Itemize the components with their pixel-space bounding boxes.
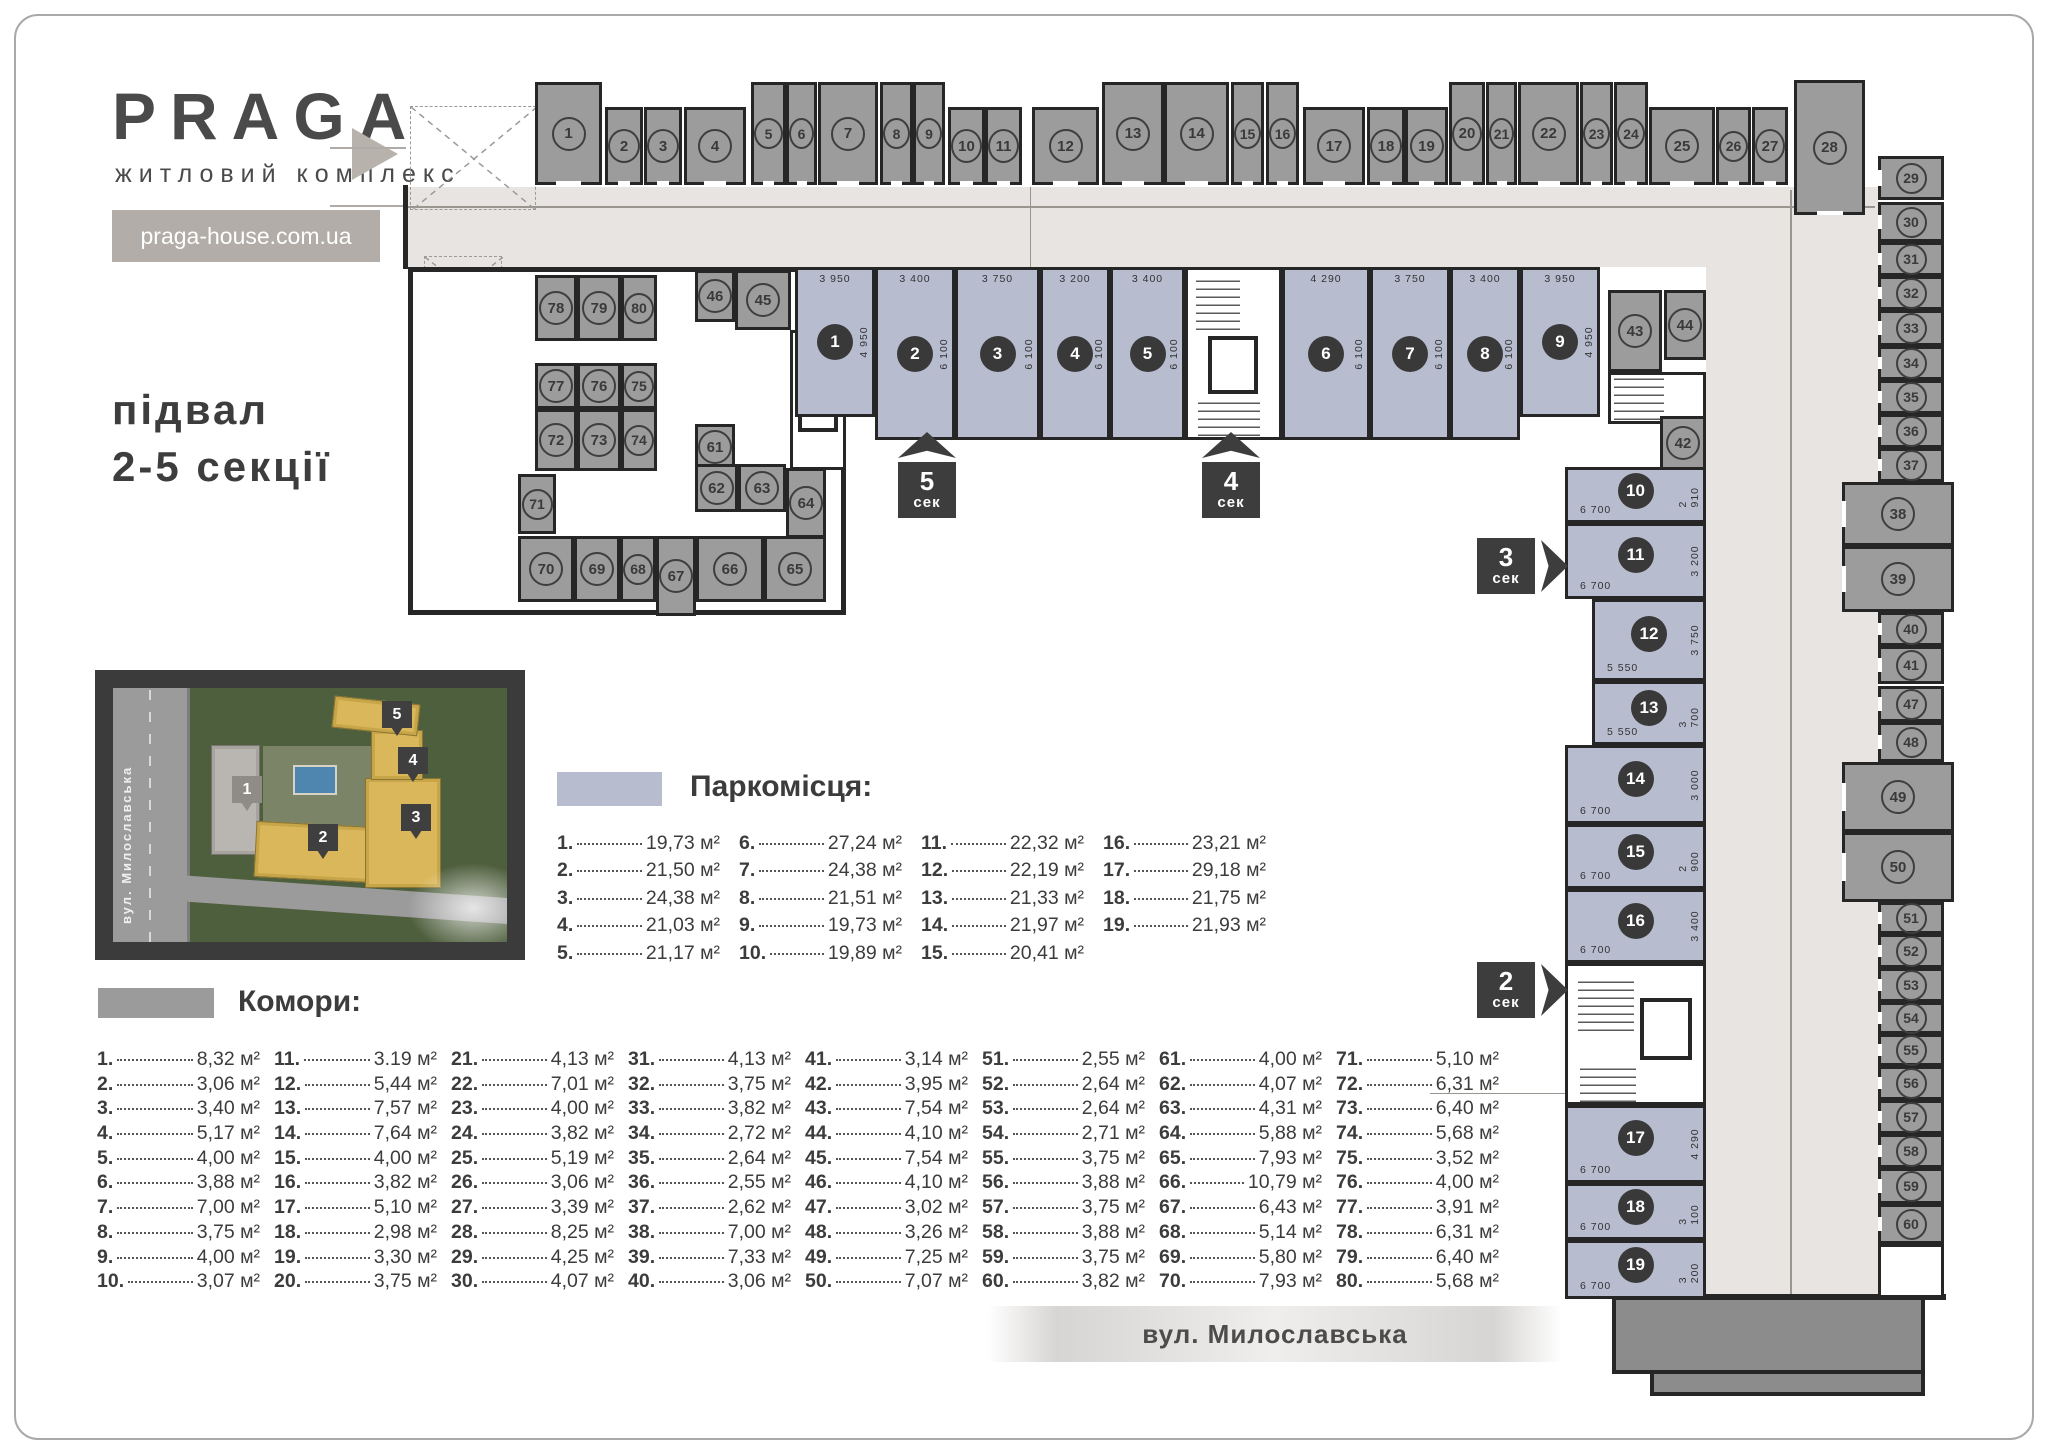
- leader-dots: [659, 1133, 724, 1135]
- parking-number: 4: [1057, 336, 1093, 372]
- door-gap: [1242, 181, 1253, 185]
- door-gap: [1878, 1111, 1882, 1123]
- dimension-label: 2 910: [1677, 483, 1701, 508]
- door-gap: [1878, 1217, 1882, 1232]
- storage-room: 14: [1164, 82, 1229, 185]
- room-number: 9: [916, 118, 942, 149]
- room-number: 26: [1719, 131, 1748, 162]
- storage-room: 34: [1878, 346, 1944, 380]
- storage-legend-item: 64.5,88 м²: [1159, 1122, 1322, 1147]
- room-number: 17: [1317, 129, 1351, 163]
- leader-dots: [482, 1084, 547, 1086]
- room-number: 7: [831, 117, 865, 151]
- leader-dots: [305, 1232, 370, 1234]
- leader-dots: [1013, 1084, 1078, 1086]
- parking-number: 6: [1308, 336, 1344, 372]
- leader-dots: [659, 1182, 724, 1184]
- room-number: 18: [1370, 129, 1402, 163]
- storage-legend-item: 60.3,82 м²: [982, 1270, 1145, 1295]
- storage-legend-item: 61.4,00 м²: [1159, 1048, 1322, 1073]
- storage-room: 32: [1878, 276, 1944, 310]
- leader-dots: [1190, 1182, 1244, 1184]
- room-number: 73: [582, 423, 616, 457]
- leader-dots: [1367, 1108, 1432, 1110]
- parking-ramp-step: [1650, 1370, 1925, 1396]
- storage-room: 35: [1878, 380, 1944, 414]
- section-word: сек: [1217, 494, 1244, 511]
- building-pin: 1: [232, 776, 262, 812]
- leader-dots: [836, 1182, 901, 1184]
- corridor-centerline: [1790, 190, 1792, 1298]
- storage-legend-item: 68.5,14 м²: [1159, 1221, 1322, 1246]
- door-gap: [1842, 566, 1846, 592]
- parking-legend-item: 11.22,32 м²: [921, 832, 1084, 859]
- leader-dots: [1367, 1158, 1432, 1160]
- storage-room: 31: [1878, 242, 1944, 276]
- parking-space: 6 7003 40016: [1565, 889, 1706, 963]
- storage-room: 64: [786, 468, 826, 538]
- utility-room: [1878, 1244, 1944, 1298]
- storage-legend-item: 38.7,00 м²: [628, 1221, 791, 1246]
- door-gap: [1497, 181, 1507, 185]
- storage-legend-item: 11.3.19 м²: [274, 1048, 437, 1073]
- storage-legend-item: 5.4,00 м²: [97, 1147, 260, 1172]
- room-number: 76: [582, 369, 616, 403]
- storage-room: 38: [1842, 482, 1954, 546]
- door-gap: [704, 181, 726, 185]
- storage-legend-item: 77.3,91 м²: [1336, 1196, 1499, 1221]
- parking-number: 8: [1467, 336, 1503, 372]
- room-number: 53: [1896, 970, 1927, 1001]
- leader-dots: [1190, 1084, 1255, 1086]
- room-number: 12: [1049, 129, 1083, 163]
- room-number: 8: [883, 118, 910, 149]
- dimension-label: 4 950: [858, 326, 870, 357]
- storage-legend-list: 1.8,32 м²2.3,06 м²3.3,40 м²4.5,17 м²5.4,…: [97, 1048, 1513, 1295]
- storage-room: 66: [696, 536, 764, 602]
- storage-room: 43: [1608, 290, 1662, 372]
- leader-dots: [1190, 1281, 1255, 1283]
- room-number: 27: [1755, 129, 1785, 163]
- parking-number: 1: [817, 324, 853, 360]
- parking-number: 17: [1618, 1120, 1654, 1156]
- door-gap: [1878, 1012, 1882, 1023]
- leader-dots: [1013, 1232, 1078, 1234]
- storage-legend-item: 34.2,72 м²: [628, 1122, 791, 1147]
- leader-dots: [1190, 1108, 1255, 1110]
- storage-legend-item: 76.4,00 м²: [1336, 1171, 1499, 1196]
- storage-legend-item: 9.4,00 м²: [97, 1246, 260, 1271]
- storage-room: 24: [1614, 82, 1648, 185]
- storage-room: 36: [1878, 414, 1944, 448]
- leader-dots: [659, 1158, 724, 1160]
- door-gap: [1878, 357, 1882, 369]
- room-number: 45: [746, 283, 780, 317]
- leader-dots: [482, 1182, 547, 1184]
- ramp-cross-lines: [411, 107, 537, 211]
- stairs-icon: [1196, 278, 1240, 330]
- storage-room: 49: [1842, 762, 1954, 832]
- room-number: 50: [1881, 850, 1915, 884]
- door-gap: [1878, 391, 1882, 403]
- door-gap: [1277, 181, 1288, 185]
- pin-tail: [410, 830, 422, 839]
- storage-room: 80: [621, 275, 657, 341]
- storage-room: 3: [644, 107, 682, 185]
- storage-legend-item: 29.4,25 м²: [451, 1246, 614, 1271]
- storage-room: 62: [695, 464, 738, 512]
- leader-dots: [305, 1084, 370, 1086]
- leader-dots: [1013, 1108, 1078, 1110]
- room-number: 19: [1410, 129, 1444, 163]
- leader-dots: [836, 1084, 901, 1086]
- storage-legend-item: 55.3,75 м²: [982, 1147, 1145, 1172]
- storage-room: 19: [1405, 107, 1448, 185]
- storage-room: 27: [1752, 107, 1788, 185]
- storage-legend-item: 72.6,31 м²: [1336, 1073, 1499, 1098]
- storage-room: 20: [1449, 82, 1485, 185]
- leader-dots: [577, 843, 642, 845]
- parking-space: 6 7003 20019: [1565, 1240, 1706, 1299]
- room-number: 60: [1896, 1209, 1927, 1240]
- leader-dots: [952, 925, 1006, 927]
- leader-dots: [577, 898, 642, 900]
- dimension-label: 6 100: [1093, 338, 1105, 369]
- parking-legend-item: 2.21,50 м²: [557, 859, 720, 886]
- leader-dots: [659, 1108, 724, 1110]
- storage-room: 75: [621, 363, 657, 409]
- storage-room: 72: [535, 409, 577, 471]
- building-pin: 4: [398, 747, 428, 783]
- section-marker: 5сек: [898, 462, 956, 518]
- storage-legend-item: 27.3,39 м²: [451, 1196, 614, 1221]
- parking-legend-item: 15.20,41 м²: [921, 942, 1084, 969]
- storage-legend-item: 39.7,33 м²: [628, 1246, 791, 1271]
- storage-legend-item: 48.3,26 м²: [805, 1221, 968, 1246]
- door-gap: [1764, 181, 1776, 185]
- leader-dots: [836, 1108, 901, 1110]
- room-number: 59: [1896, 1171, 1927, 1202]
- leader-dots: [1013, 1158, 1078, 1160]
- parking-space: 6 7004 29017: [1565, 1105, 1706, 1183]
- storage-legend-item: 35.2,64 м²: [628, 1147, 791, 1172]
- storage-room: 74: [621, 409, 657, 471]
- door-gap: [1728, 181, 1740, 185]
- room-number: 61: [698, 430, 732, 464]
- leader-dots: [1367, 1059, 1432, 1061]
- leader-dots: [1367, 1207, 1432, 1209]
- storage-legend-item: 41.3,14 м²: [805, 1048, 968, 1073]
- room-number: 58: [1896, 1136, 1927, 1167]
- parking-legend-item: 7.24,38 м²: [739, 859, 902, 886]
- leader-dots: [1367, 1232, 1432, 1234]
- leader-dots: [952, 898, 1006, 900]
- storage-legend-item: 62.4,07 м²: [1159, 1073, 1322, 1098]
- storage-legend-item: 42.3,95 м²: [805, 1073, 968, 1098]
- section-marker: 2сек: [1477, 962, 1535, 1018]
- storage-legend-item: 49.7,25 м²: [805, 1246, 968, 1271]
- wall: [403, 185, 408, 269]
- parking-space: 6 7002 90015: [1565, 824, 1706, 889]
- storage-legend-item: 4.5,17 м²: [97, 1122, 260, 1147]
- leader-dots: [1367, 1257, 1432, 1259]
- door-gap: [1878, 459, 1882, 471]
- parking-legend-item: 14.21,97 м²: [921, 914, 1084, 941]
- storage-room: 15: [1231, 82, 1264, 185]
- storage-room: 37: [1878, 448, 1944, 482]
- door-gap: [797, 181, 807, 185]
- room-number: 54: [1896, 1003, 1927, 1034]
- dimension-label: 4 290: [1689, 1128, 1701, 1159]
- leader-dots: [1367, 1281, 1432, 1283]
- leader-dots: [482, 1207, 547, 1209]
- parking-legend-item: 17.29,18 м²: [1103, 859, 1266, 886]
- door-gap: [1878, 1145, 1882, 1157]
- leader-dots: [305, 1133, 370, 1135]
- parking-space: 3 7506 1007: [1370, 267, 1450, 440]
- parking-number: 5: [1130, 336, 1166, 372]
- room-number: 6: [789, 118, 814, 149]
- building-pin: 5: [382, 701, 412, 737]
- door-gap: [1185, 181, 1209, 185]
- street-band: вул. Милославська: [988, 1306, 1562, 1362]
- leader-dots: [836, 1158, 901, 1160]
- door-gap: [960, 181, 972, 185]
- dimension-label: 6 700: [1580, 504, 1611, 516]
- dimension-label: 6 100: [1353, 338, 1365, 369]
- door-gap: [1670, 181, 1694, 185]
- storage-legend-item: 40.3,06 м²: [628, 1270, 791, 1295]
- section-number: 5: [920, 468, 934, 494]
- storage-legend-item: 16.3,82 м²: [274, 1171, 437, 1196]
- dimension-label: 2 900: [1677, 842, 1701, 872]
- parking-space: 3 7506 1003: [955, 267, 1040, 440]
- room-number: 38: [1881, 497, 1915, 531]
- storage-legend-item: 47.3,02 м²: [805, 1196, 968, 1221]
- parking-legend-item: 3.24,38 м²: [557, 887, 720, 914]
- storage-room: 44: [1664, 290, 1706, 360]
- leader-dots: [836, 1133, 901, 1135]
- section-number: 3: [1499, 544, 1513, 570]
- parking-legend-item: 16.23,21 м²: [1103, 832, 1266, 859]
- room-number: 16: [1269, 118, 1296, 149]
- room-number: 21: [1489, 118, 1514, 149]
- storage-room: 55: [1878, 1034, 1944, 1066]
- room-number: 68: [623, 554, 653, 585]
- door-gap: [1817, 211, 1843, 215]
- storage-room: 40: [1878, 612, 1944, 646]
- storage-legend-item: 67.6,43 м²: [1159, 1196, 1322, 1221]
- storage-room: 60: [1878, 1204, 1944, 1244]
- stairs-icon: [1580, 1062, 1636, 1102]
- storage-legend-item: 78.6,31 м²: [1336, 1221, 1499, 1246]
- leader-dots: [128, 1281, 193, 1283]
- room-number: 32: [1896, 278, 1927, 309]
- parking-legend-item: 10.19,89 м²: [739, 942, 902, 969]
- pin-tail: [317, 850, 329, 859]
- leader-dots: [577, 925, 642, 927]
- room-number: 13: [1116, 117, 1150, 151]
- dimension-label: 3 400: [1113, 273, 1182, 285]
- leader-dots: [1367, 1084, 1432, 1086]
- leader-dots: [117, 1108, 192, 1110]
- pool: [293, 765, 337, 795]
- door-gap: [1878, 945, 1882, 957]
- storage-legend-item: 73.6,40 м²: [1336, 1097, 1499, 1122]
- leader-dots: [305, 1257, 370, 1259]
- leader-dots: [1134, 843, 1188, 845]
- pin-tail: [241, 802, 253, 811]
- storage-room: 47: [1878, 686, 1944, 722]
- parking-legend-item: 9.19,73 м²: [739, 914, 902, 941]
- parking-number: 16: [1618, 903, 1654, 939]
- storage-room: 23: [1580, 82, 1613, 185]
- room-number: 2: [608, 129, 640, 163]
- pin-number: 5: [382, 701, 412, 728]
- section-word: сек: [1492, 994, 1519, 1011]
- storage-legend-item: 13.7,57 м²: [274, 1097, 437, 1122]
- storage-legend-item: 56.3,88 м²: [982, 1171, 1145, 1196]
- dimension-label: 3 400: [1689, 910, 1701, 941]
- door-gap: [1591, 181, 1602, 185]
- storage-legend-item: 59.3,75 м²: [982, 1246, 1145, 1271]
- room-number: 14: [1180, 117, 1214, 151]
- room-number: 22: [1532, 117, 1566, 151]
- storage-room: 46: [695, 270, 735, 322]
- door-gap: [1625, 181, 1636, 185]
- door-gap: [1380, 181, 1393, 185]
- room-number: 70: [529, 552, 563, 586]
- leader-dots: [1190, 1232, 1255, 1234]
- storage-legend-item: 20.3,75 м²: [274, 1270, 437, 1295]
- leader-dots: [836, 1281, 901, 1283]
- leader-dots: [1013, 1133, 1078, 1135]
- door-gap: [1878, 321, 1882, 334]
- storage-room: 79: [577, 275, 621, 341]
- storage-legend-item: 58.3,88 м²: [982, 1221, 1145, 1246]
- storage-legend-item: 19.3,30 м²: [274, 1246, 437, 1271]
- corridor-centerline: [408, 206, 1875, 208]
- door-gap: [1878, 697, 1882, 710]
- leader-dots: [305, 1158, 370, 1160]
- parking-space: 3 4006 1008: [1450, 267, 1520, 440]
- leader-dots: [117, 1133, 192, 1135]
- storage-room: 54: [1878, 1002, 1944, 1034]
- door-gap: [1842, 501, 1846, 527]
- leader-dots: [1134, 925, 1188, 927]
- leader-dots: [759, 925, 824, 927]
- storage-legend-item: 80.5,68 м²: [1336, 1270, 1499, 1295]
- storage-legend-item: 65.7,93 м²: [1159, 1147, 1322, 1172]
- dimension-label: 6 100: [1503, 338, 1515, 369]
- dimension-label: 6 700: [1580, 1164, 1611, 1176]
- photo-street-label: вул. Милославська: [119, 724, 134, 924]
- building-pin: 2: [308, 824, 338, 860]
- storage-legend-item: 21.4,13 м²: [451, 1048, 614, 1073]
- storage-room: 33: [1878, 310, 1944, 346]
- dimension-label: 6 100: [938, 338, 950, 369]
- leader-dots: [659, 1207, 724, 1209]
- leader-dots: [1190, 1158, 1255, 1160]
- parking-legend-list: 1.19,73 м²2.21,50 м²3.24,38 м²4.21,03 м²…: [557, 832, 1285, 969]
- storage-legend-item: 8.3,75 м²: [97, 1221, 260, 1246]
- door-gap: [891, 181, 902, 185]
- road-markings: [149, 688, 151, 942]
- room-number: 47: [1896, 689, 1927, 720]
- storage-legend-item: 54.2,71 м²: [982, 1122, 1145, 1147]
- leader-dots: [836, 1059, 901, 1061]
- leader-dots: [1190, 1059, 1255, 1061]
- building-pin: 3: [401, 804, 431, 840]
- parking-space: 6 7003 20011: [1565, 523, 1706, 599]
- dimension-label: 3 750: [958, 273, 1037, 285]
- door-gap: [1878, 658, 1882, 672]
- storage-legend-item: 24.3,82 м²: [451, 1122, 614, 1147]
- room-number: 67: [659, 559, 693, 593]
- leader-dots: [305, 1182, 370, 1184]
- leader-dots: [577, 953, 642, 955]
- storage-legend-item: 63.4,31 м²: [1159, 1097, 1322, 1122]
- room-number: 46: [698, 279, 732, 313]
- leader-dots: [117, 1158, 192, 1160]
- room-number: 80: [624, 293, 654, 324]
- room-number: 25: [1665, 129, 1699, 163]
- leader-dots: [1134, 870, 1188, 872]
- storage-legend-item: 7.7,00 м²: [97, 1196, 260, 1221]
- parking-space: 3 4006 1005: [1110, 267, 1185, 440]
- room-number: 74: [624, 425, 654, 456]
- room-number: 69: [580, 552, 614, 586]
- leader-dots: [117, 1059, 192, 1061]
- parking-number: 10: [1618, 473, 1654, 509]
- room-number: 33: [1896, 313, 1927, 344]
- storage-legend-item: 69.5,80 м²: [1159, 1246, 1322, 1271]
- street-label: вул. Милославська: [1142, 1319, 1407, 1350]
- room-number: 30: [1896, 207, 1927, 238]
- storage-legend-item: 22.7,01 м²: [451, 1073, 614, 1098]
- parking-space: 3 4006 1002: [875, 267, 955, 440]
- storage-legend-item: 50.7,07 м²: [805, 1270, 968, 1295]
- door-gap: [1538, 181, 1560, 185]
- leader-dots: [117, 1207, 192, 1209]
- door-gap: [1461, 181, 1473, 185]
- dimension-label: 3 000: [1689, 769, 1701, 800]
- door-gap: [1878, 735, 1882, 750]
- section-marker: 3сек: [1477, 538, 1535, 594]
- leader-dots: [117, 1182, 192, 1184]
- door-gap: [657, 181, 670, 185]
- section-number: 4: [1224, 468, 1238, 494]
- dimension-label: 3 200: [1043, 273, 1107, 285]
- room-number: 66: [713, 552, 747, 586]
- room-number: 56: [1896, 1068, 1927, 1099]
- leader-dots: [482, 1281, 547, 1283]
- storage-legend-item: 15.4,00 м²: [274, 1147, 437, 1172]
- leader-dots: [1367, 1133, 1432, 1135]
- elevator-shaft: [1640, 998, 1692, 1060]
- parking-number: 14: [1618, 761, 1654, 797]
- pin-number: 2: [308, 824, 338, 851]
- section-word: сек: [1492, 570, 1519, 587]
- leader-dots: [659, 1281, 724, 1283]
- dimension-label: 6 100: [1168, 338, 1180, 369]
- storage-legend-item: 36.2,55 м²: [628, 1171, 791, 1196]
- storage-room: 78: [535, 275, 577, 341]
- leader-dots: [659, 1059, 724, 1061]
- parking-space: 6 7003 10018: [1565, 1183, 1706, 1240]
- section-number: 2: [1499, 968, 1513, 994]
- section-marker: 4сек: [1202, 462, 1260, 518]
